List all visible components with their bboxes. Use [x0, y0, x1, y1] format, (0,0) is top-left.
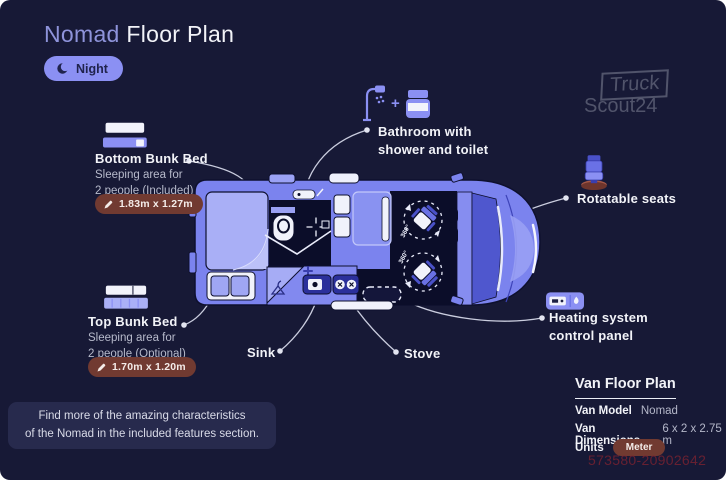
cab-console: [449, 227, 458, 244]
top-bunk-bed-icon: [100, 281, 152, 315]
windshield: [472, 193, 501, 304]
pillow: [211, 276, 229, 296]
pencil-icon: [103, 199, 114, 210]
cab-console: [449, 208, 458, 223]
heating-label-2: control panel: [549, 328, 648, 343]
listing-id-watermark: 573580-20902642: [588, 452, 706, 468]
van-dimensions-value: 6 x 2 x 2.75 m: [662, 423, 726, 447]
shower-drain: [322, 221, 329, 228]
rotatable-seats-label: Rotatable seats: [577, 191, 676, 206]
rotatable-seat-icon: [578, 150, 610, 194]
roof-window: [329, 173, 359, 183]
bathroom-label-2: shower and toilet: [378, 142, 488, 157]
shelf-dot: [298, 193, 301, 196]
toilet-base: [271, 207, 295, 213]
bathroom-shelf-item: [293, 190, 315, 199]
van-model-label: Van Model: [575, 405, 632, 417]
heating-panel-location: [363, 287, 401, 302]
van-floor-plan-illustration: 360° 360°: [183, 163, 545, 315]
top-bunk-dimensions-badge: 1.70m x 1.20m: [88, 357, 196, 377]
bench-cushion: [334, 195, 350, 214]
plus-icon: +: [391, 95, 400, 112]
bench-cushion: [382, 197, 389, 241]
heating-label-1: Heating system: [549, 310, 648, 325]
toilet-icon: [403, 89, 433, 121]
note-line-1: Find more of the amazing characteristics: [8, 408, 276, 426]
bottom-bunk-dimensions-badge: 1.83m x 1.27m: [95, 194, 203, 214]
bottom-bunk-title: Bottom Bunk Bed: [95, 151, 208, 166]
top-bunk-dimensions: 1.70m x 1.20m: [112, 361, 186, 373]
stove-label: Stove: [404, 346, 440, 361]
rear-door-handle: [189, 252, 196, 273]
bottom-bunk-dimensions: 1.83m x 1.27m: [119, 198, 193, 210]
sink-faucet: [312, 282, 317, 287]
top-bunk-title: Top Bunk Bed: [88, 314, 178, 329]
bathroom-label-1: Bathroom with: [378, 124, 488, 139]
pillow: [231, 276, 249, 296]
note-box: Find more of the amazing characteristics…: [8, 402, 276, 449]
pencil-icon: [96, 362, 107, 373]
note-line-2: of the Nomad in the included features se…: [8, 426, 276, 444]
roof-vent: [269, 174, 295, 183]
sink-label: Sink: [247, 345, 275, 360]
entry-step: [331, 301, 393, 310]
floor-plan-card: Nomad Floor Plan Night Truck Scout24: [0, 0, 726, 480]
info-panel-title: Van Floor Plan: [575, 376, 676, 399]
bottom-bunk-bed-icon: [98, 118, 150, 154]
bench-cushion: [334, 217, 350, 237]
shower-icon: [362, 84, 388, 122]
heating-panel-icon: [546, 292, 584, 310]
info-row-van-model: Van Model Nomad: [575, 405, 678, 417]
bottom-bunk-desc-1: Sleeping area for: [95, 167, 193, 183]
dashboard: [457, 192, 472, 305]
van-model-value: Nomad: [641, 405, 678, 417]
top-bunk-desc-1: Sleeping area for: [88, 330, 186, 346]
